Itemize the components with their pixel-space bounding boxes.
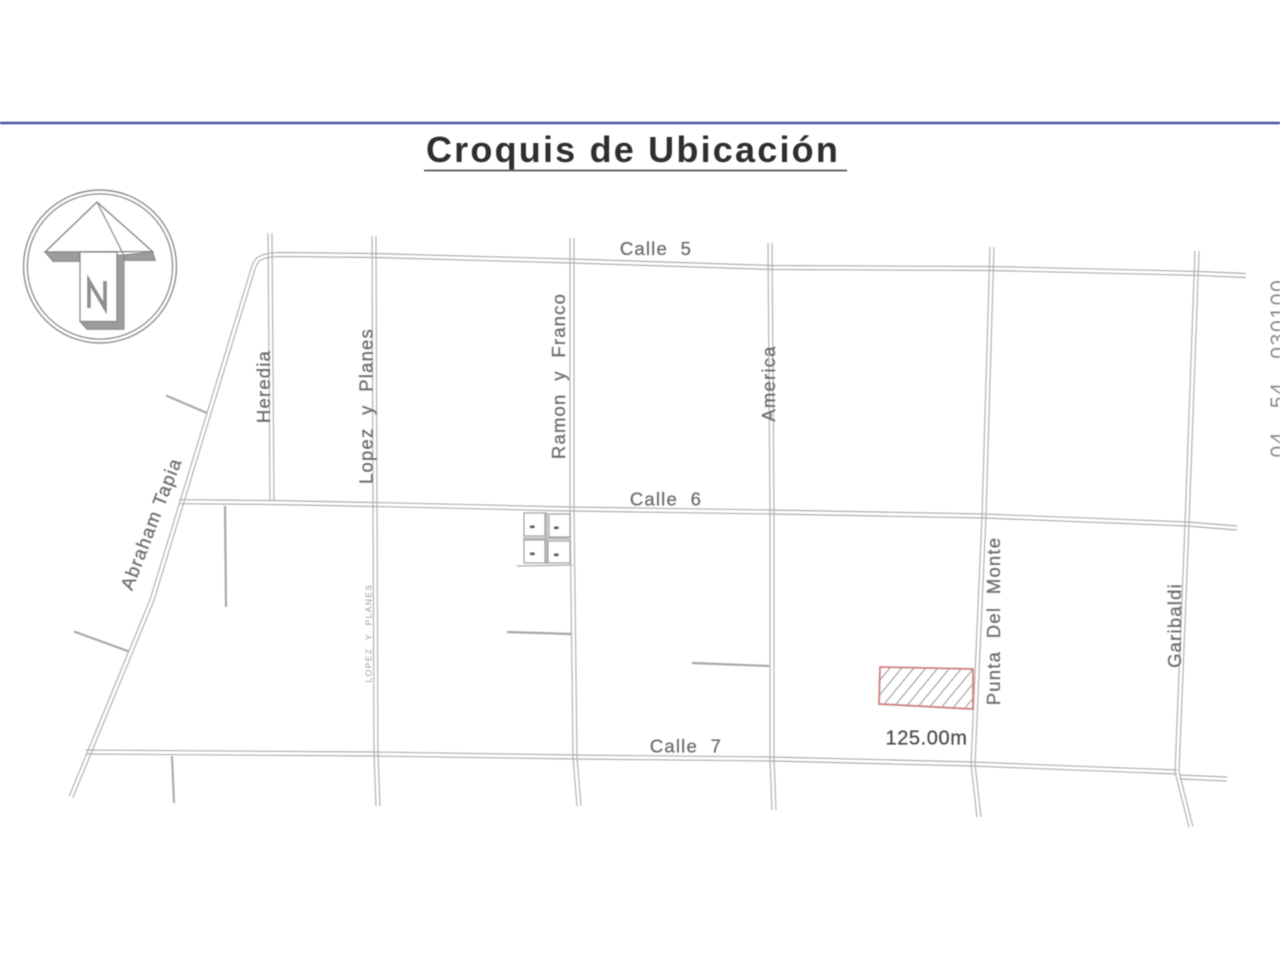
svg-text:Punta Del Monte: Punta Del Monte (983, 537, 1004, 705)
svg-text:Calle 6: Calle 6 (630, 489, 702, 510)
svg-text:Calle 7: Calle 7 (650, 736, 722, 757)
svg-text:04 54 030100: 04 54 030100 (1267, 279, 1280, 458)
svg-text:Garibaldi: Garibaldi (1164, 583, 1185, 668)
svg-text:America: America (758, 345, 779, 421)
svg-text:Lopez y Planes: Lopez y Planes (356, 328, 377, 484)
svg-text:125.00m: 125.00m (885, 728, 967, 750)
svg-text:Calle 5: Calle 5 (620, 238, 692, 259)
svg-text:LOPEZ Y PLANES: LOPEZ Y PLANES (364, 584, 374, 683)
svg-text:Heredia: Heredia (253, 350, 274, 423)
svg-text:Ramon y Franco: Ramon y Franco (548, 293, 569, 459)
svg-text:Croquis de Ubicación: Croquis de Ubicación (426, 129, 840, 170)
